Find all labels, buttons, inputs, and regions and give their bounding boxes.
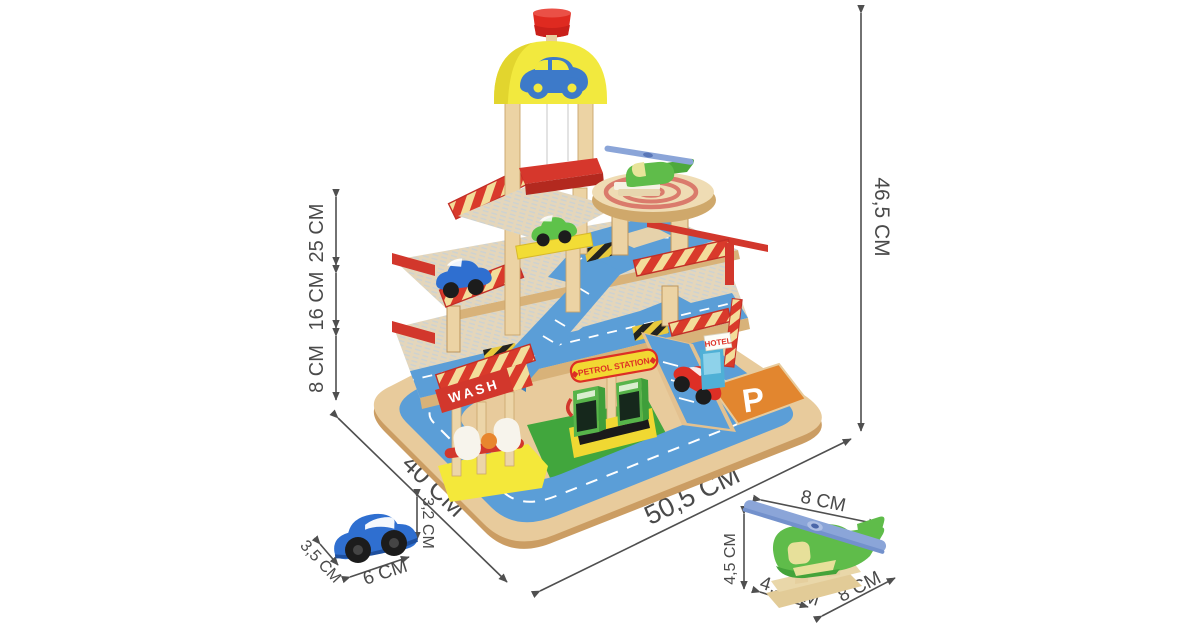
svg-text:8 CM: 8 CM <box>799 487 848 517</box>
svg-text:6 CM: 6 CM <box>360 556 410 590</box>
svg-text:4,5 CM: 4,5 CM <box>722 533 739 585</box>
svg-text:25 CM: 25 CM <box>306 204 328 263</box>
svg-text:8 CM: 8 CM <box>306 345 328 393</box>
svg-text:16 CM: 16 CM <box>306 272 328 331</box>
svg-text:3,2 CM: 3,2 CM <box>419 497 436 549</box>
svg-text:46,5 CM: 46,5 CM <box>870 177 893 256</box>
